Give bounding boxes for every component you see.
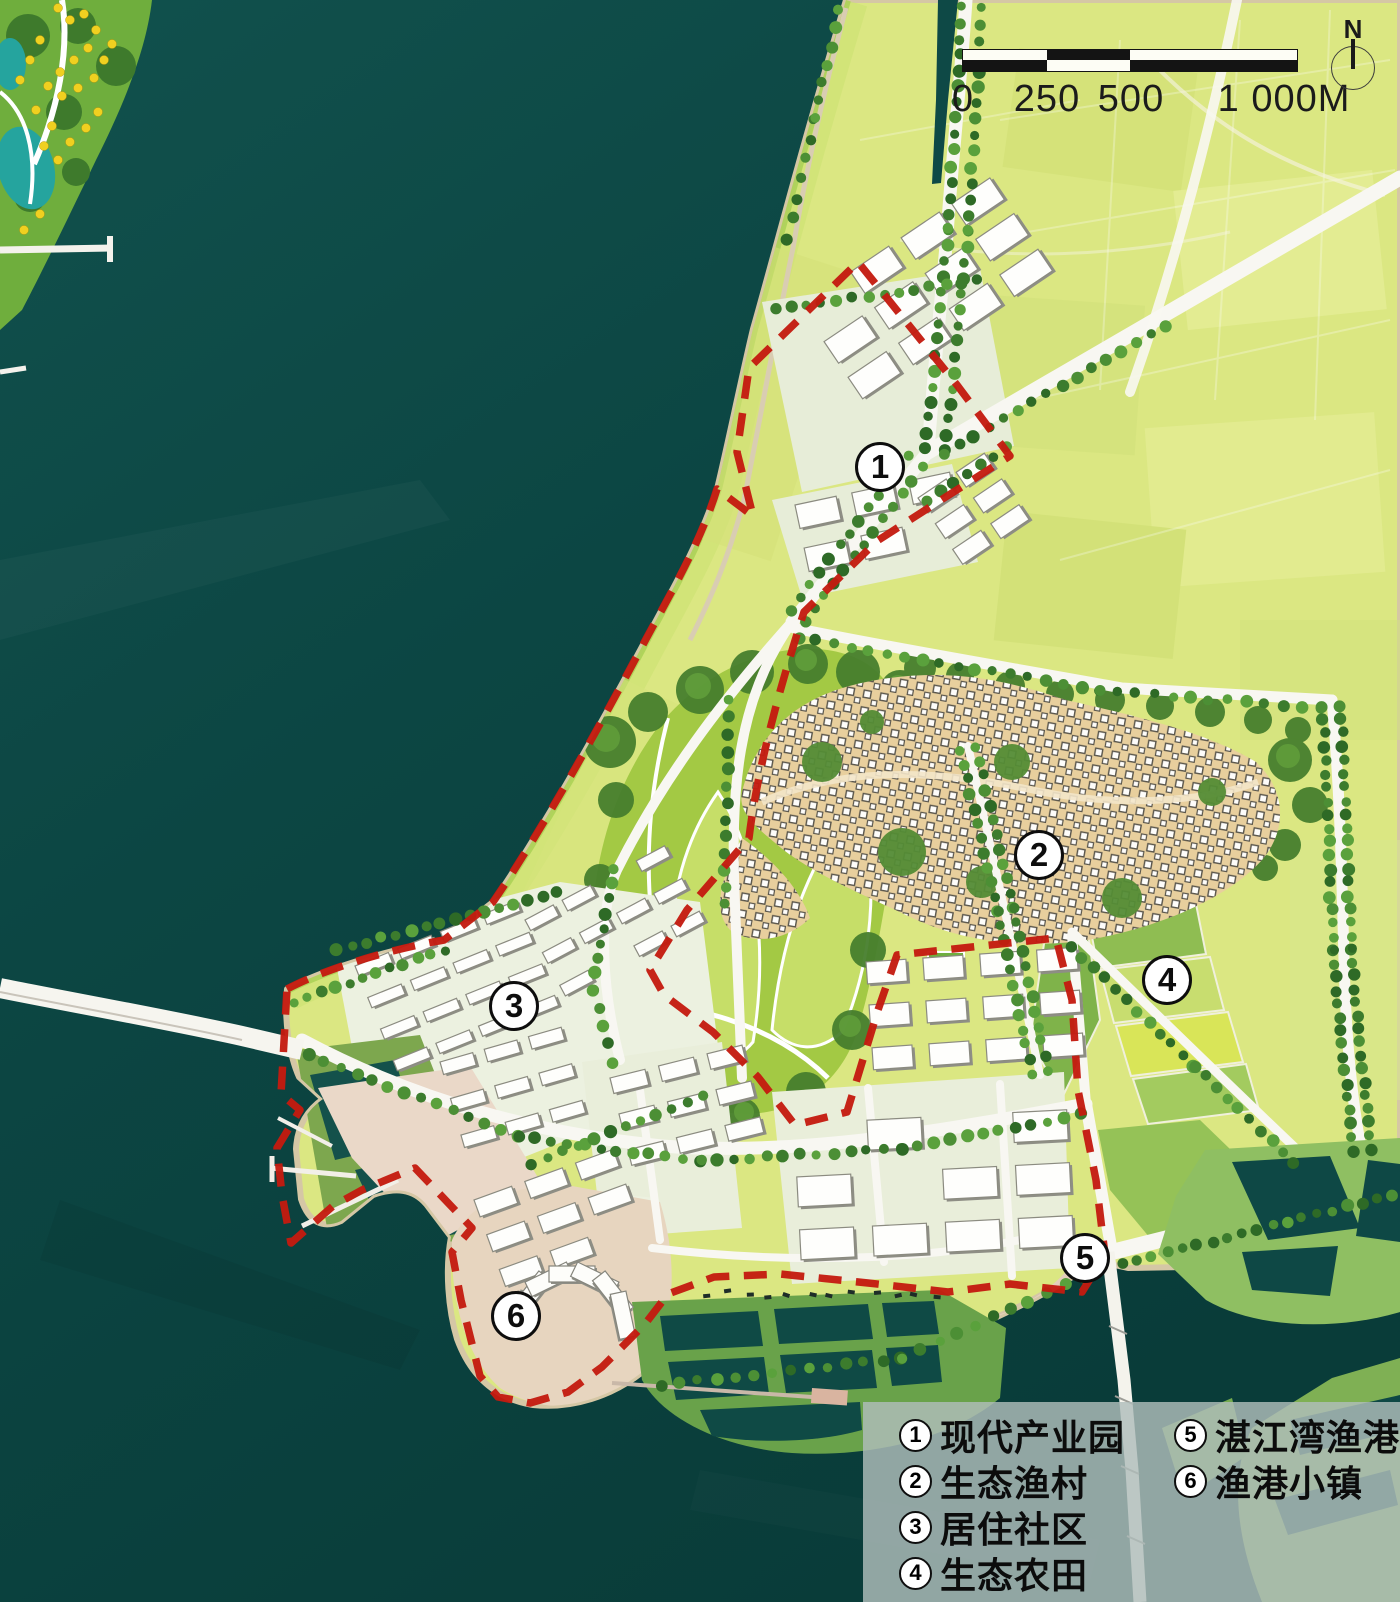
legend-item-4: 4 生态农田 [899,1550,1150,1596]
legend-item-2: 2 生态渔村 [899,1458,1150,1504]
scale-segment [1047,60,1131,71]
scale-label-500: 500 [1098,78,1164,121]
scale-segment [1047,50,1131,60]
north-circle [1331,46,1375,90]
scale-bar: 0 250 500 1 000M [962,49,1298,124]
map-marker-3: 3 [489,981,539,1031]
scale-segment [963,50,1047,60]
legend-label-6: 渔港小镇 [1215,1455,1363,1507]
north-tick [1351,39,1355,69]
scale-label-0: 0 [952,78,974,121]
legend-panel: 1 现代产业园 2 生态渔村 3 居住社区 4 生态农田 5 湛江湾渔港 6 渔… [863,1402,1400,1602]
legend-number-6: 6 [1174,1465,1207,1498]
scale-segment [1130,60,1297,71]
legend-label-3: 居住社区 [940,1501,1088,1553]
scale-segment [963,60,1047,71]
north-arrow: N [1330,16,1376,90]
map-marker-4: 4 [1142,955,1192,1005]
map-marker-6: 6 [491,1291,541,1341]
legend-item-5: 5 湛江湾渔港 [1174,1412,1400,1458]
legend-item-6: 6 渔港小镇 [1174,1458,1400,1504]
legend-number-2: 2 [899,1465,932,1498]
masterplan-map: 0 250 500 1 000M N 1 2 3 4 5 6 1 现代产业园 2… [0,0,1400,1602]
map-marker-1: 1 [855,442,905,492]
scale-label-250: 250 [1014,78,1080,121]
legend-number-5: 5 [1174,1419,1207,1452]
legend-label-4: 生态农田 [940,1547,1088,1599]
legend-label-5: 湛江湾渔港 [1215,1409,1400,1461]
legend-label-1: 现代产业园 [940,1409,1125,1461]
map-marker-5: 5 [1060,1233,1110,1283]
legend-number-1: 1 [899,1419,932,1452]
legend-label-2: 生态渔村 [940,1455,1088,1507]
legend-number-4: 4 [899,1557,932,1590]
scale-bar-graphic [962,49,1298,72]
map-marker-2: 2 [1014,830,1064,880]
legend-number-3: 3 [899,1511,932,1544]
map-render [0,0,1400,1602]
scale-segment [1130,50,1297,60]
legend-item-3: 3 居住社区 [899,1504,1150,1550]
legend-item-1: 1 现代产业园 [899,1412,1150,1458]
